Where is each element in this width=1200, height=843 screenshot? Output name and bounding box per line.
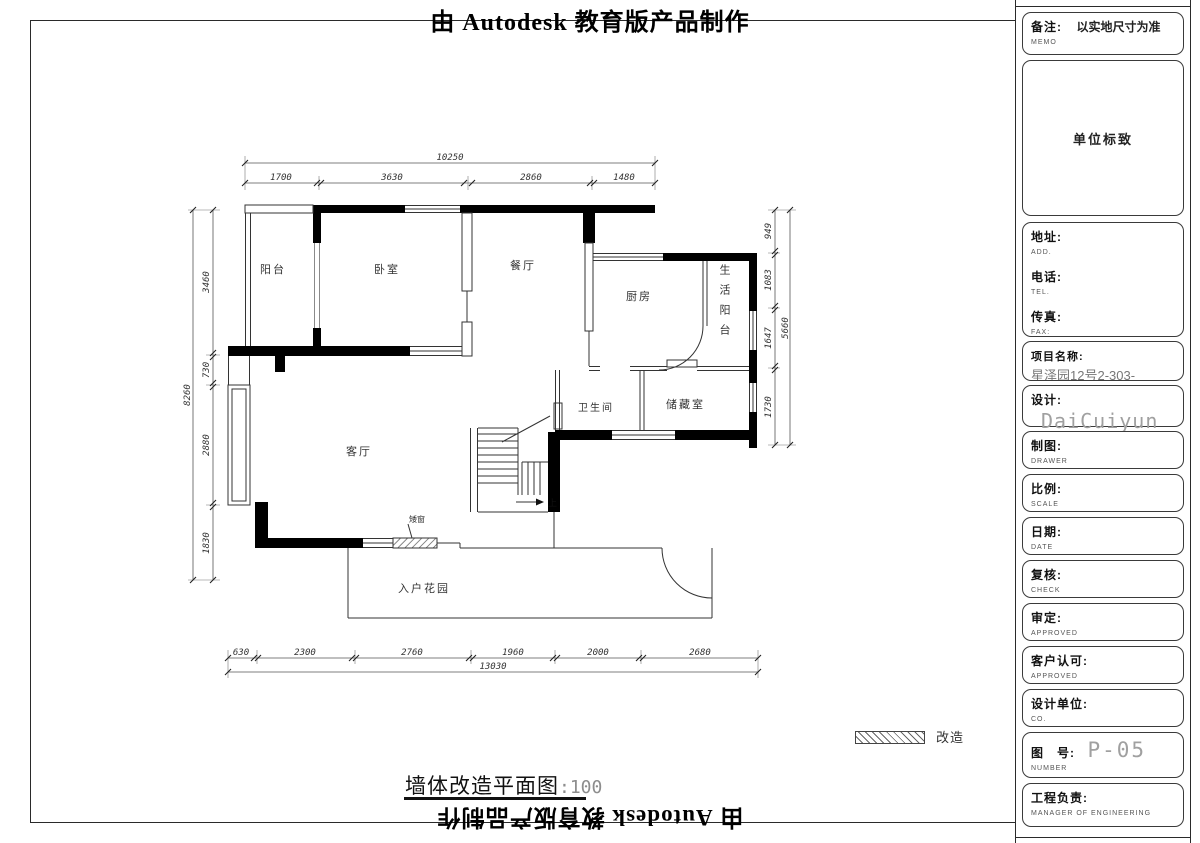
dim-bottom-3: 1960 bbox=[502, 648, 524, 658]
check-label: 复核: bbox=[1031, 568, 1062, 582]
legend-modified-label: 改造 bbox=[936, 727, 964, 746]
titleblock-drawer: 制图: DRAWER bbox=[1022, 431, 1184, 469]
room-label-bathroom: 卫生间 bbox=[578, 399, 614, 414]
titleblock-bottom-line bbox=[1015, 837, 1191, 838]
phone-label: 电话: bbox=[1031, 270, 1062, 284]
number-sub: NUMBER bbox=[1031, 765, 1175, 772]
room-label-balcony: 阳台 bbox=[260, 261, 286, 277]
room-label-entry-garden: 入户花园 bbox=[398, 580, 450, 596]
dim-right-1: 1083 bbox=[764, 269, 774, 291]
stairs-up-label: 上 bbox=[548, 496, 557, 509]
phone-sub: TEL. bbox=[1031, 289, 1175, 296]
approved-label: 审定: bbox=[1031, 611, 1062, 625]
titleblock-client: 客户认可: APPROVED bbox=[1022, 646, 1184, 684]
dim-top-2: 2860 bbox=[520, 173, 542, 183]
titleblock-scale: 比例: SCALE bbox=[1022, 474, 1184, 512]
fax-label: 传真: bbox=[1031, 310, 1062, 324]
autodesk-banner-top: 由 Autodesk 教育版产品制作 bbox=[370, 2, 810, 37]
fax-row: 传真: FAX: bbox=[1031, 308, 1175, 336]
number-value: P-05 bbox=[1087, 738, 1146, 762]
cad-drawing-page: { "banner": { "top_text": "由 Autodesk 教育… bbox=[0, 0, 1200, 843]
frame-right-line bbox=[1190, 0, 1191, 843]
check-sub: CHECK bbox=[1031, 587, 1175, 594]
address-sub: ADD. bbox=[1031, 249, 1175, 256]
number-label: 图 号: bbox=[1031, 746, 1075, 760]
caption-title: 墙体改造平面图 bbox=[405, 775, 559, 798]
designer-label: 设计: bbox=[1031, 393, 1062, 407]
manager-sub: MANAGER OF ENGINEERING bbox=[1031, 810, 1175, 817]
titleblock-contact: 地址: ADD. 电话: TEL. 传真: FAX: bbox=[1022, 222, 1184, 337]
caption-scale: :100 bbox=[559, 777, 602, 798]
scale-label: 比例: bbox=[1031, 482, 1062, 496]
client-sub: APPROVED bbox=[1031, 673, 1175, 680]
fax-sub: FAX: bbox=[1031, 329, 1175, 336]
titleblock-project: 项目名称: 星泽园12号2-303- PROJECT bbox=[1022, 341, 1184, 381]
client-label: 客户认可: bbox=[1031, 654, 1088, 668]
drawer-sub: DRAWER bbox=[1031, 458, 1175, 465]
dimension-labels: 10250 1700 3630 2860 1480 8260 3460 730 … bbox=[183, 153, 791, 672]
memo-sub: MEMO bbox=[1031, 39, 1175, 46]
date-label: 日期: bbox=[1031, 525, 1062, 539]
window-note-label: 矮窗 bbox=[409, 514, 425, 525]
drawing-caption: 墙体改造平面图:100 bbox=[405, 770, 602, 800]
room-label-storage: 储藏室 bbox=[666, 396, 705, 412]
dim-bottom-5: 2680 bbox=[689, 648, 711, 658]
logo-placeholder: 单位标致 bbox=[1073, 129, 1133, 148]
frame-left-line bbox=[30, 20, 31, 823]
room-label-dining: 餐厅 bbox=[510, 257, 536, 273]
titleblock-manager: 工程负责: MANAGER OF ENGINEERING bbox=[1022, 783, 1184, 827]
dim-bottom-2: 2760 bbox=[401, 648, 423, 658]
titleblock-date: 日期: DATE bbox=[1022, 517, 1184, 555]
drawer-label: 制图: bbox=[1031, 439, 1062, 453]
address-row: 地址: ADD. bbox=[1031, 228, 1175, 256]
approved-sub: APPROVED bbox=[1031, 630, 1175, 637]
dim-top-3: 1480 bbox=[613, 173, 635, 183]
dim-bottom-total: 13030 bbox=[479, 662, 506, 672]
manager-label: 工程负责: bbox=[1031, 791, 1088, 805]
project-label: 项目名称: bbox=[1031, 351, 1084, 363]
dim-top-1: 3630 bbox=[380, 173, 403, 183]
dim-left-1: 730 bbox=[202, 362, 212, 378]
titleblock-company: 设计单位: CO. bbox=[1022, 689, 1184, 727]
titleblock-approved: 审定: APPROVED bbox=[1022, 603, 1184, 641]
dim-right-2: 1647 bbox=[764, 327, 774, 349]
dim-top-total: 10250 bbox=[436, 153, 463, 163]
titleblock-memo: 备注: 以实地尺寸为准 MEMO bbox=[1022, 12, 1184, 55]
caption-underline bbox=[404, 797, 586, 800]
scale-sub: SCALE bbox=[1031, 501, 1175, 508]
legend-hatch-swatch bbox=[855, 731, 925, 744]
autodesk-banner-bottom: 由 Autodesk 教育版产品制作 bbox=[380, 803, 800, 837]
titleblock-logo: 单位标致 bbox=[1022, 60, 1184, 216]
titleblock-divider-line bbox=[1015, 0, 1016, 843]
dim-bottom-1: 2300 bbox=[294, 648, 316, 658]
dim-left-total: 8260 bbox=[183, 384, 193, 406]
dim-right-0: 949 bbox=[764, 223, 774, 239]
dim-left-2: 2880 bbox=[202, 434, 212, 456]
memo-value: 以实地尺寸为准 bbox=[1076, 20, 1160, 34]
address-label: 地址: bbox=[1031, 230, 1062, 244]
titleblock-top-line bbox=[1015, 6, 1191, 7]
titleblock-check: 复核: CHECK bbox=[1022, 560, 1184, 598]
dim-bottom-0: 630 bbox=[233, 648, 249, 658]
room-label-kitchen: 厨房 bbox=[626, 288, 652, 304]
room-label-utility-balcony: 生活阳台 bbox=[716, 264, 732, 394]
room-label-bedroom: 卧室 bbox=[374, 261, 400, 277]
phone-row: 电话: TEL. bbox=[1031, 268, 1175, 296]
company-label: 设计单位: bbox=[1031, 697, 1088, 711]
dimensions-layer bbox=[188, 156, 796, 678]
titleblock-designer: 设计: DaiCuiyun DESIGNER bbox=[1022, 385, 1184, 427]
room-label-living: 客厅 bbox=[346, 443, 372, 459]
dim-bottom-4: 2000 bbox=[587, 648, 609, 658]
dim-right-total: 5660 bbox=[781, 317, 791, 339]
floor-plan-svg: 10250 1700 3630 2860 1480 8260 3460 730 … bbox=[180, 150, 820, 690]
designer-value: DaiCuiyun bbox=[1041, 409, 1158, 433]
dim-top-0: 1700 bbox=[270, 173, 292, 183]
dim-left-3: 1830 bbox=[202, 532, 212, 554]
dim-left-0: 3460 bbox=[202, 271, 212, 294]
project-value: 星泽园12号2-303- bbox=[1031, 368, 1135, 381]
floor-plan-area: 10250 1700 3630 2860 1480 8260 3460 730 … bbox=[180, 150, 820, 690]
memo-label: 备注: bbox=[1031, 20, 1062, 34]
date-sub: DATE bbox=[1031, 544, 1175, 551]
walls-layer bbox=[228, 205, 757, 548]
dim-right-3: 1730 bbox=[764, 396, 774, 418]
company-sub: CO. bbox=[1031, 716, 1175, 723]
titleblock-number: 图 号: P-05 NUMBER bbox=[1022, 732, 1184, 778]
